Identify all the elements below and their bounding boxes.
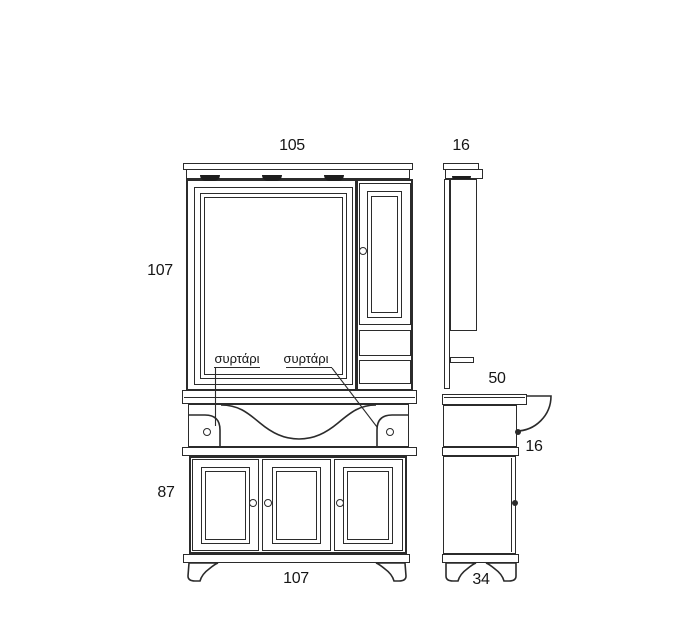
dim-mirror-height: 107 xyxy=(142,263,178,279)
mirror-glass xyxy=(204,197,343,375)
dim-base-width: 107 xyxy=(278,571,314,587)
label-drawer-right: συρτάρι xyxy=(276,352,336,365)
front-right-foot xyxy=(376,563,406,581)
dim-front-width: 105 xyxy=(262,138,322,154)
side-countertop-slab xyxy=(442,394,527,405)
front-plinth xyxy=(183,554,410,563)
side-rail-band xyxy=(442,447,519,456)
drawer-knob-left xyxy=(203,428,211,436)
dim-side-depth-top: 16 xyxy=(446,138,476,154)
base-door-2-panel-inner xyxy=(276,471,317,540)
spotlight-icon xyxy=(324,175,344,181)
side-mirror-cabinet-box xyxy=(450,179,477,331)
column-divider xyxy=(355,179,358,391)
dim-counter-depth: 50 xyxy=(479,371,515,387)
base-door-1-knob xyxy=(249,499,257,507)
side-column-shelf-2 xyxy=(359,360,411,384)
door-knob xyxy=(359,247,367,255)
side-plinth xyxy=(442,554,519,563)
countertop-edge-line xyxy=(184,397,415,398)
side-shelf xyxy=(450,357,474,363)
dim-counter-thickness: 16 xyxy=(516,439,552,455)
side-drawer-knob-dot xyxy=(515,429,521,435)
side-countertop-edge-line xyxy=(444,397,525,398)
label-drawer-left: συρτάρι xyxy=(207,352,267,365)
front-cornice-band xyxy=(186,169,410,179)
furniture-technical-drawing: 105 16 107 87 107 50 16 34 συρτάρι συρτά… xyxy=(0,0,688,637)
drawer-knob-right xyxy=(386,428,394,436)
base-door-2-knob xyxy=(264,499,272,507)
base-door-3-panel-inner xyxy=(347,471,389,540)
base-door-3-knob xyxy=(336,499,344,507)
dim-side-depth-bottom: 34 xyxy=(463,572,499,588)
side-base-cabinet xyxy=(443,456,516,554)
side-door-knob-dot xyxy=(512,500,518,506)
side-column-shelf-1 xyxy=(359,330,411,356)
counter-rail-band xyxy=(182,447,417,456)
side-apron xyxy=(443,405,517,447)
mirror-cabinet-door-panel-inner xyxy=(371,196,398,313)
spotlight-icon xyxy=(262,175,282,181)
spotlight-icon xyxy=(200,175,220,181)
front-left-foot xyxy=(188,563,218,581)
apron-drawer-band xyxy=(188,404,409,447)
base-door-1-panel-inner xyxy=(205,471,246,540)
dim-base-height: 87 xyxy=(148,485,184,501)
